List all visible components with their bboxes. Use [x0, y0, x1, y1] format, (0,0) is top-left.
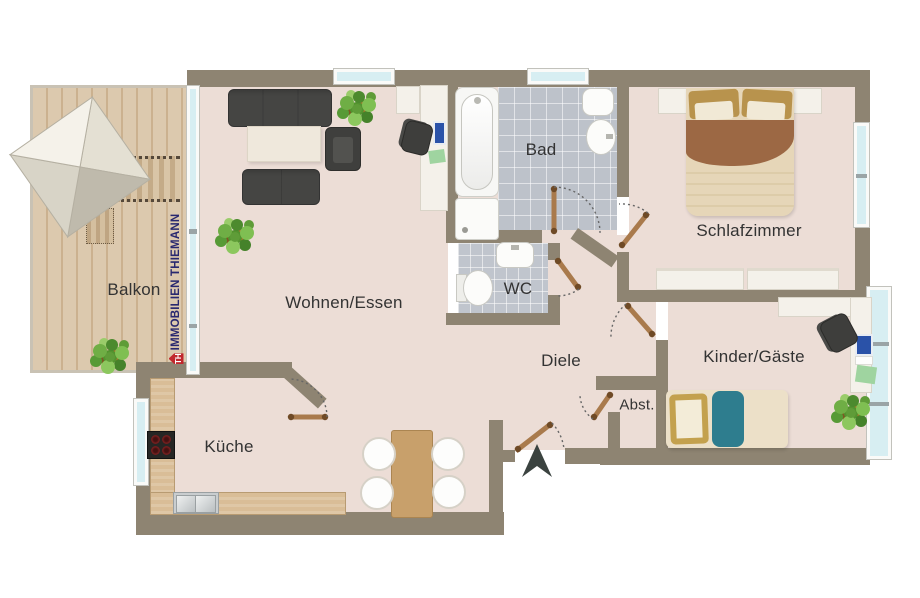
kitchen-sink-icon: [173, 492, 219, 514]
watermark: TH IMMOBILIEN THIEMANN: [166, 214, 186, 364]
floor-plan: Balkon Wohnen/Essen Küche Bad WC Diele S…: [0, 0, 920, 598]
wall-schlafzimmer-left-bottom: [617, 252, 629, 302]
window-living-top: [333, 68, 395, 85]
watermark-text: IMMOBILIEN THIEMANN: [170, 214, 182, 351]
dining-table-icon: [391, 430, 433, 518]
bed-teal-blanket: [712, 391, 744, 447]
window-schlafzimmer-right: [853, 122, 870, 228]
nightstand-icon: [658, 88, 688, 114]
armchair-icon: [325, 127, 361, 171]
room-label-wc: WC: [504, 279, 533, 299]
wall-entrance-right: [565, 448, 600, 464]
room-label-abstellraum: Abst.: [619, 397, 654, 414]
wall-wc-right-stub-top: [548, 243, 560, 260]
paper-icon: [855, 356, 873, 365]
bed-pillow: [669, 393, 709, 444]
sofa-2seat-icon: [242, 169, 320, 205]
room-label-diele: Diele: [541, 351, 581, 371]
room-label-kueche: Küche: [204, 437, 253, 457]
dining-chair-icon: [362, 437, 396, 471]
window-bad-top: [527, 68, 589, 85]
wall-kinder-bottom: [600, 448, 870, 465]
wall-wc-right-stub-bottom: [548, 295, 560, 315]
wall-wc-bottom: [446, 313, 560, 325]
wardrobe-icon: [656, 268, 744, 290]
sofa-3seat-icon: [228, 89, 332, 127]
sink-wc-icon: [496, 242, 534, 268]
double-bed-icon: [686, 88, 794, 216]
shelf-icon: [396, 86, 420, 114]
single-bed-icon: [666, 390, 788, 448]
bed-blanket: [686, 120, 794, 166]
stove-icon: [147, 431, 175, 459]
wardrobe-icon: [747, 268, 839, 290]
plant-icon: [352, 104, 362, 114]
room-label-balkon: Balkon: [107, 280, 160, 300]
wall-schlafzimmer-left-top: [617, 87, 629, 197]
plant-icon: [846, 408, 856, 418]
wall-bottom-left: [136, 512, 504, 535]
plant-icon: [105, 352, 115, 362]
wall-abst-left-bottom: [608, 412, 620, 450]
wall-abst-top: [596, 376, 668, 390]
bathtub-icon: [455, 87, 499, 197]
toilet-bad-icon: [582, 88, 614, 116]
laptop-icon: [433, 121, 446, 145]
green-paper-icon: [855, 365, 877, 385]
sun-lounger-icon: [60, 156, 180, 202]
coffee-table-icon: [247, 126, 321, 162]
dining-chair-icon: [431, 437, 465, 471]
dining-chair-icon: [360, 476, 394, 510]
toilet-wc-icon: [456, 270, 492, 304]
wall-kitchen-top: [150, 362, 292, 378]
room-label-schlafzimmer: Schlafzimmer: [696, 221, 801, 241]
room-label-wohnen-essen: Wohnen/Essen: [285, 293, 402, 313]
green-paper-icon: [428, 149, 446, 164]
shower-tray-icon: [455, 198, 499, 240]
immobilien-thiemann-logo-icon: TH: [169, 353, 184, 364]
plant-icon: [230, 232, 240, 242]
room-label-kinder-gaeste: Kinder/Gäste: [703, 347, 805, 367]
balcony-door-glass: [186, 85, 200, 375]
balcony-table-icon: [86, 208, 114, 244]
sink-bad-icon: [586, 119, 616, 155]
room-label-bad: Bad: [526, 140, 557, 160]
nightstand-icon: [792, 88, 822, 114]
dining-chair-icon: [432, 475, 466, 509]
